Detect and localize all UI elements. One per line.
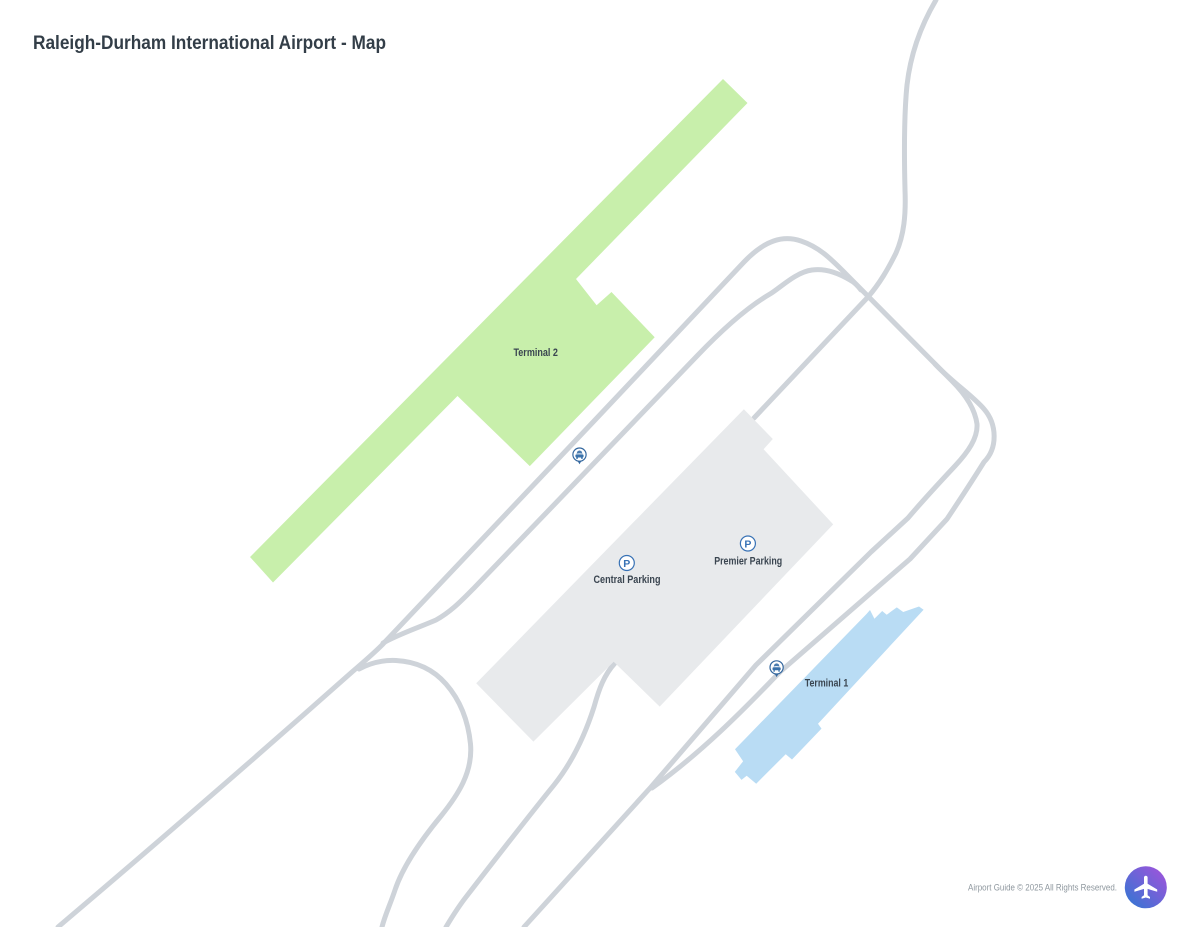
svg-text:Central Parking: Central Parking bbox=[594, 574, 661, 586]
svg-text:Terminal 1: Terminal 1 bbox=[805, 677, 849, 689]
svg-text:P: P bbox=[623, 558, 630, 570]
svg-text:Premier Parking: Premier Parking bbox=[714, 555, 782, 567]
svg-text:P: P bbox=[744, 538, 751, 550]
svg-text:Raleigh-Durham International A: Raleigh-Durham International Airport - M… bbox=[33, 33, 386, 54]
svg-text:Terminal 2: Terminal 2 bbox=[513, 347, 558, 359]
svg-text:Airport Guide © 2025 All Right: Airport Guide © 2025 All Rights Reserved… bbox=[968, 882, 1117, 892]
